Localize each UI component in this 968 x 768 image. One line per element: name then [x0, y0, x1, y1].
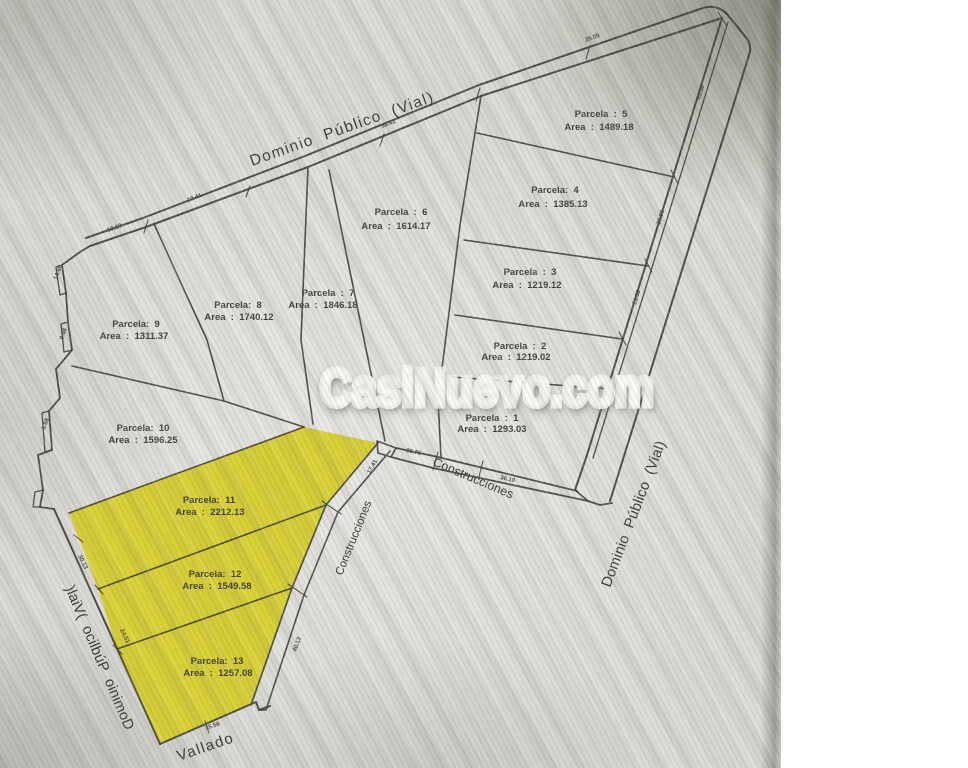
svg-text:Area : 1614.17: Area : 1614.17	[361, 221, 430, 232]
svg-text:Area : 1257.08: Area : 1257.08	[183, 668, 252, 679]
svg-text:Dominio Público (Vial): Dominio Público (Vial)	[248, 89, 437, 170]
svg-text:Dominio Público (Vial): Dominio Público (Vial)	[599, 439, 670, 590]
svg-text:25.05: 25.05	[585, 33, 602, 44]
svg-text:40.13: 40.13	[292, 636, 303, 653]
svg-text:Vallado: Vallado	[175, 729, 237, 764]
svg-text:Parcela : 2: Parcela : 2	[494, 341, 547, 352]
svg-text:Area : 1219.12: Area : 1219.12	[492, 280, 561, 291]
svg-text:Parcela: 13: Parcela: 13	[191, 656, 244, 667]
svg-text:Area : 1385.13: Area : 1385.13	[518, 199, 587, 210]
svg-text:Parcela: 9: Parcela: 9	[112, 319, 160, 330]
svg-text:9.48: 9.48	[59, 327, 69, 341]
svg-text:Parcela : 7: Parcela : 7	[302, 288, 355, 299]
svg-text:Area : 1293.03: Area : 1293.03	[457, 424, 526, 435]
svg-text:26.76: 26.76	[406, 448, 423, 457]
svg-text:Parcela : 5: Parcela : 5	[575, 109, 629, 120]
svg-text:Area : 1489.18: Area : 1489.18	[564, 122, 633, 133]
svg-text:Parcela: 12: Parcela: 12	[189, 569, 242, 580]
svg-text:Parcela : 6: Parcela : 6	[375, 207, 428, 218]
svg-text:19.60: 19.60	[107, 223, 124, 234]
svg-text:Area : 1740.12: Area : 1740.12	[204, 312, 273, 323]
svg-text:Area : 1596.25: Area : 1596.25	[108, 435, 178, 446]
svg-text:Parcela: 10: Parcela: 10	[117, 423, 170, 434]
svg-text:Area : 1549.58: Area : 1549.58	[182, 581, 251, 592]
svg-text:Parcela: 8: Parcela: 8	[214, 300, 262, 311]
svg-text:Area : 1846.18: Area : 1846.18	[288, 300, 357, 311]
svg-text:Parcela: 4: Parcela: 4	[531, 185, 579, 196]
svg-text:Area : 2212.13: Area : 2212.13	[175, 507, 244, 518]
svg-text:Area : 1311.37: Area : 1311.37	[100, 331, 169, 342]
svg-text:19.41: 19.41	[187, 193, 204, 204]
svg-text:Parcela : 3: Parcela : 3	[504, 267, 557, 278]
svg-text:36.50: 36.50	[656, 209, 666, 226]
svg-text:Parcela: 11: Parcela: 11	[183, 495, 236, 506]
